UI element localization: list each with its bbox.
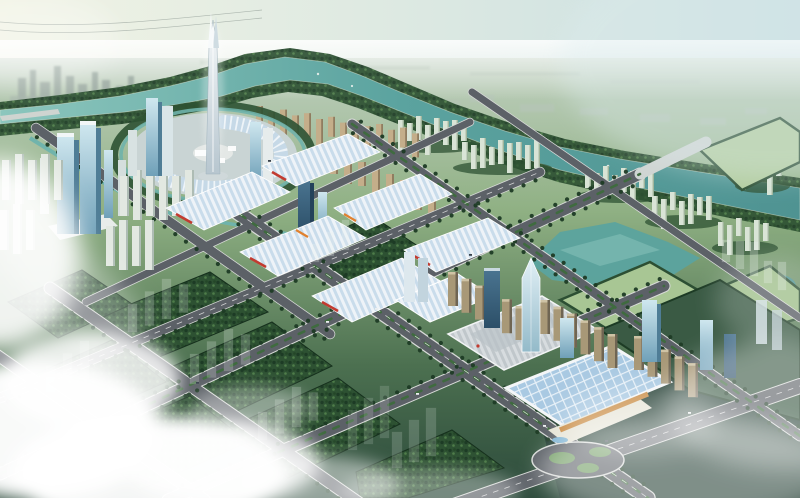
street-tree (386, 326, 390, 330)
ghost-building (179, 285, 188, 313)
street-tree (259, 341, 263, 345)
street-tree (393, 161, 397, 165)
ghost-building (241, 335, 250, 365)
street-tree (174, 329, 178, 333)
street-tree (584, 206, 588, 210)
street-tree (586, 308, 590, 312)
street-tree (431, 375, 435, 379)
street-tree (266, 355, 270, 359)
street-tree (535, 430, 539, 434)
car (459, 367, 462, 369)
slab-shade (166, 170, 168, 220)
tower-shade (588, 320, 591, 354)
street-tree (172, 399, 176, 403)
street-tree (395, 390, 399, 394)
street-tree (468, 213, 472, 217)
slab-shade (711, 196, 712, 220)
rendering-canvas (0, 0, 800, 498)
slab-shade (759, 220, 760, 250)
ghost-building (190, 354, 199, 384)
street-tree (624, 170, 628, 174)
street-tree (455, 186, 459, 190)
street-tree (481, 371, 485, 375)
slab-shade (768, 223, 769, 241)
slab-shade (152, 220, 154, 270)
street-tree (492, 378, 496, 382)
street-tree (318, 313, 322, 317)
street-tree (551, 253, 555, 257)
street-tree (618, 317, 622, 321)
slab-shade (494, 147, 495, 165)
slab-shade (512, 143, 513, 173)
street-tree (423, 164, 427, 168)
street-tree (290, 314, 294, 318)
street-tree (626, 305, 630, 309)
street-tree (300, 267, 304, 271)
tower-shade (575, 314, 578, 348)
street-tree (258, 292, 262, 296)
street-tree (404, 168, 408, 172)
street-tree (454, 267, 458, 271)
street-tree (604, 290, 608, 294)
street-tree (506, 225, 510, 229)
street-tree (417, 326, 421, 330)
street-tree (150, 339, 154, 343)
car (268, 160, 271, 162)
street-tree (615, 298, 619, 302)
street-tree (198, 319, 202, 323)
street-tree (378, 244, 382, 248)
street-tree (548, 223, 552, 227)
street-tree (184, 240, 188, 244)
tan-shade (309, 113, 311, 137)
street-tree (482, 393, 486, 397)
street-tree (439, 363, 443, 367)
street-tree (269, 299, 273, 303)
street-tree (413, 228, 417, 232)
slab-shade (421, 116, 422, 140)
street-tree (546, 437, 550, 441)
slab-shade (702, 197, 703, 215)
street-tree (311, 426, 315, 430)
street-tree (519, 231, 523, 235)
street-tree (536, 228, 540, 232)
street-tree (564, 280, 568, 284)
street-tree (588, 186, 592, 190)
street-tree (668, 335, 672, 339)
car (416, 393, 419, 395)
tower-shade (615, 334, 618, 368)
street-tree (230, 372, 234, 376)
street-tree (541, 208, 545, 212)
street-tree (282, 284, 286, 288)
ghost-building (722, 240, 730, 262)
street-tree (195, 388, 199, 392)
street-tree (162, 334, 166, 338)
street-tree (442, 272, 446, 276)
street-tree (622, 292, 626, 296)
slab-shade (521, 142, 522, 160)
street-tree (235, 352, 239, 356)
street-tree (407, 385, 411, 389)
street-tree (222, 309, 226, 313)
street-tree (282, 330, 286, 334)
street-tree (553, 203, 557, 207)
street-tree (577, 192, 581, 196)
street-tree (428, 334, 432, 338)
car (196, 382, 199, 384)
street-tree (455, 365, 459, 369)
ghost-building (224, 329, 233, 371)
street-tree (671, 354, 675, 358)
street-tree (565, 197, 569, 201)
ghost-building (207, 342, 216, 378)
tan-shade (321, 119, 323, 147)
street-tree (336, 322, 340, 326)
slab-shade (485, 138, 486, 168)
ghost-building (364, 398, 373, 444)
street-tree (312, 329, 316, 333)
street-tree (268, 222, 272, 226)
street-tree (458, 205, 462, 209)
street-tree (428, 356, 432, 360)
street-tree (583, 276, 587, 280)
street-tree (200, 368, 204, 372)
slab-shade (653, 173, 654, 197)
street-tree (439, 341, 443, 345)
street-tree (294, 279, 298, 283)
street-tree (487, 209, 491, 213)
street-tree (679, 342, 683, 346)
street-tree (518, 219, 522, 223)
ghost-building (312, 244, 319, 262)
street-tree (471, 363, 475, 367)
slab-shade (126, 220, 128, 270)
distant-cluster (520, 104, 554, 112)
street-tree (600, 181, 604, 185)
slab-shade (741, 218, 742, 236)
street-tree (503, 408, 507, 412)
street-tree (418, 348, 422, 352)
street-tree (449, 348, 453, 352)
street-tree (366, 249, 370, 253)
street-tree (522, 250, 526, 254)
tower-shade (456, 272, 459, 306)
street-tree (443, 370, 447, 374)
street-tree (628, 324, 632, 328)
street-tree (35, 135, 39, 139)
street-tree (460, 356, 464, 360)
slab-shade (503, 140, 504, 164)
street-tree (300, 432, 304, 436)
street-tree (419, 380, 423, 384)
car (543, 425, 546, 427)
street-tree (401, 233, 405, 237)
street-tree (322, 336, 326, 340)
street-tree (521, 183, 525, 187)
slab-shade (113, 226, 115, 266)
street-tree (380, 134, 384, 138)
street-tree (489, 250, 493, 254)
street-tree (450, 371, 454, 375)
slab-shade (467, 142, 468, 160)
street-tree (359, 406, 363, 410)
street-tree (530, 214, 534, 218)
street-tree (163, 225, 167, 229)
street-tree (525, 234, 529, 238)
street-tree (207, 383, 211, 387)
street-tree (277, 350, 281, 354)
street-tree (447, 198, 451, 202)
street-tree (375, 319, 379, 323)
street-tree (194, 247, 198, 251)
slab-shade (476, 145, 477, 169)
ghost-building (309, 393, 318, 421)
tower-shade (548, 300, 551, 334)
slab-shade (732, 225, 733, 255)
street-tree (306, 274, 310, 278)
street-tree (396, 333, 400, 337)
ghost-building (392, 432, 402, 468)
street-tree (205, 254, 209, 258)
tower-shade (510, 299, 513, 333)
street-tree (210, 314, 214, 318)
street-tree (433, 172, 437, 176)
slab-shade (140, 170, 142, 220)
street-tree (301, 339, 305, 343)
street-tree (289, 344, 293, 348)
street-tree (598, 303, 602, 307)
tower-shade (469, 279, 472, 313)
street-tree (572, 268, 576, 272)
street-tree (646, 282, 650, 286)
street-tree (401, 149, 405, 153)
aerial-rendering: Bird's-eye architectural visualization: … (0, 0, 800, 498)
street-tree (467, 359, 471, 363)
street-tree (237, 277, 241, 281)
street-tree (313, 333, 317, 337)
street-tree (631, 184, 635, 188)
street-tree (236, 222, 240, 226)
car (469, 254, 472, 256)
street-tree (187, 392, 191, 396)
street-tree (216, 262, 220, 266)
street-tree (325, 328, 329, 332)
street-tree (493, 400, 497, 404)
street-tree (354, 254, 358, 258)
street-tree (525, 422, 529, 426)
street-tree (509, 188, 513, 192)
street-tree (466, 261, 470, 265)
car (375, 308, 378, 310)
slab-shade (693, 194, 694, 224)
street-tree (226, 269, 230, 273)
street-tree (242, 366, 246, 370)
ghost-building (380, 386, 389, 438)
tan-shade (333, 117, 335, 137)
car (326, 321, 329, 323)
street-tree (607, 195, 611, 199)
street-tree (186, 324, 190, 328)
street-tree (543, 265, 547, 269)
slab-shade (139, 226, 141, 266)
street-tree (412, 157, 416, 161)
street-tree (562, 261, 566, 265)
ghost-building (342, 220, 349, 250)
street-tree (690, 350, 694, 354)
street-tree (607, 309, 611, 313)
street-tree (532, 257, 536, 261)
street-tree (514, 415, 518, 419)
street-tree (461, 208, 465, 212)
street-tree (540, 246, 544, 250)
street-tree (471, 385, 475, 389)
slab-shade (675, 192, 676, 210)
street-tree (294, 324, 298, 328)
street-tree (247, 230, 251, 234)
street-tree (311, 274, 315, 278)
tan-shade (405, 128, 407, 148)
ghost-building (409, 420, 419, 462)
street-tree (323, 421, 327, 425)
street-tree (437, 218, 441, 222)
street-tree (322, 282, 326, 286)
slab-shade (153, 176, 155, 216)
tower-shade (602, 327, 605, 361)
street-tree (498, 216, 502, 220)
street-tree (425, 223, 429, 227)
ghost-building (327, 232, 334, 256)
street-tree (248, 284, 252, 288)
street-tree (258, 237, 262, 241)
street-tree (473, 203, 477, 207)
slab-shade (127, 176, 129, 216)
street-tree (330, 264, 334, 268)
street-tree (279, 230, 283, 234)
ghost-building (348, 410, 357, 450)
tower-shade (669, 350, 672, 384)
slab-shade (530, 145, 531, 169)
street-tree (594, 283, 598, 287)
street-tree (271, 335, 275, 339)
street-tree (619, 190, 623, 194)
street-tree (351, 131, 355, 135)
street-tree (254, 361, 258, 365)
street-tree (533, 178, 537, 182)
street-tree (301, 322, 305, 326)
street-tree (396, 311, 400, 315)
street-tree (466, 194, 470, 198)
street-tree (246, 299, 250, 303)
street-tree (610, 298, 614, 302)
street-tree (586, 295, 590, 299)
street-tree (595, 201, 599, 205)
street-tree (449, 213, 453, 217)
street-tree (634, 287, 638, 291)
street-tree (444, 179, 448, 183)
street-tree (407, 341, 411, 345)
street-tree (342, 259, 346, 263)
street-tree (359, 120, 363, 124)
street-tree (234, 304, 238, 308)
street-tree (343, 274, 347, 278)
street-tree (173, 232, 177, 236)
street-tree (45, 143, 49, 147)
street-tree (554, 272, 558, 276)
slab-shade (684, 201, 685, 225)
street-tree (478, 256, 482, 260)
street-tree (280, 307, 284, 311)
street-tree (497, 193, 501, 197)
street-tree (306, 319, 310, 323)
street-tree (560, 217, 564, 221)
street-tree (461, 378, 465, 382)
street-tree (369, 127, 373, 131)
street-tree (270, 289, 274, 293)
street-tree (318, 269, 322, 273)
street-tree (612, 175, 616, 179)
ghost-building (426, 408, 436, 456)
street-tree (183, 394, 187, 398)
street-tree (219, 377, 223, 381)
street-tree (321, 259, 325, 263)
street-tree (530, 238, 534, 242)
street-tree (257, 215, 261, 219)
street-tree (658, 277, 662, 281)
street-tree (335, 416, 339, 420)
street-tree (485, 198, 489, 202)
street-tree (407, 319, 411, 323)
street-tree (636, 313, 640, 317)
street-tree (383, 153, 387, 157)
street-tree (389, 239, 393, 243)
ghost-building (162, 279, 171, 319)
street-tree (575, 287, 579, 291)
street-tree (391, 142, 395, 146)
street-tree (572, 212, 576, 216)
